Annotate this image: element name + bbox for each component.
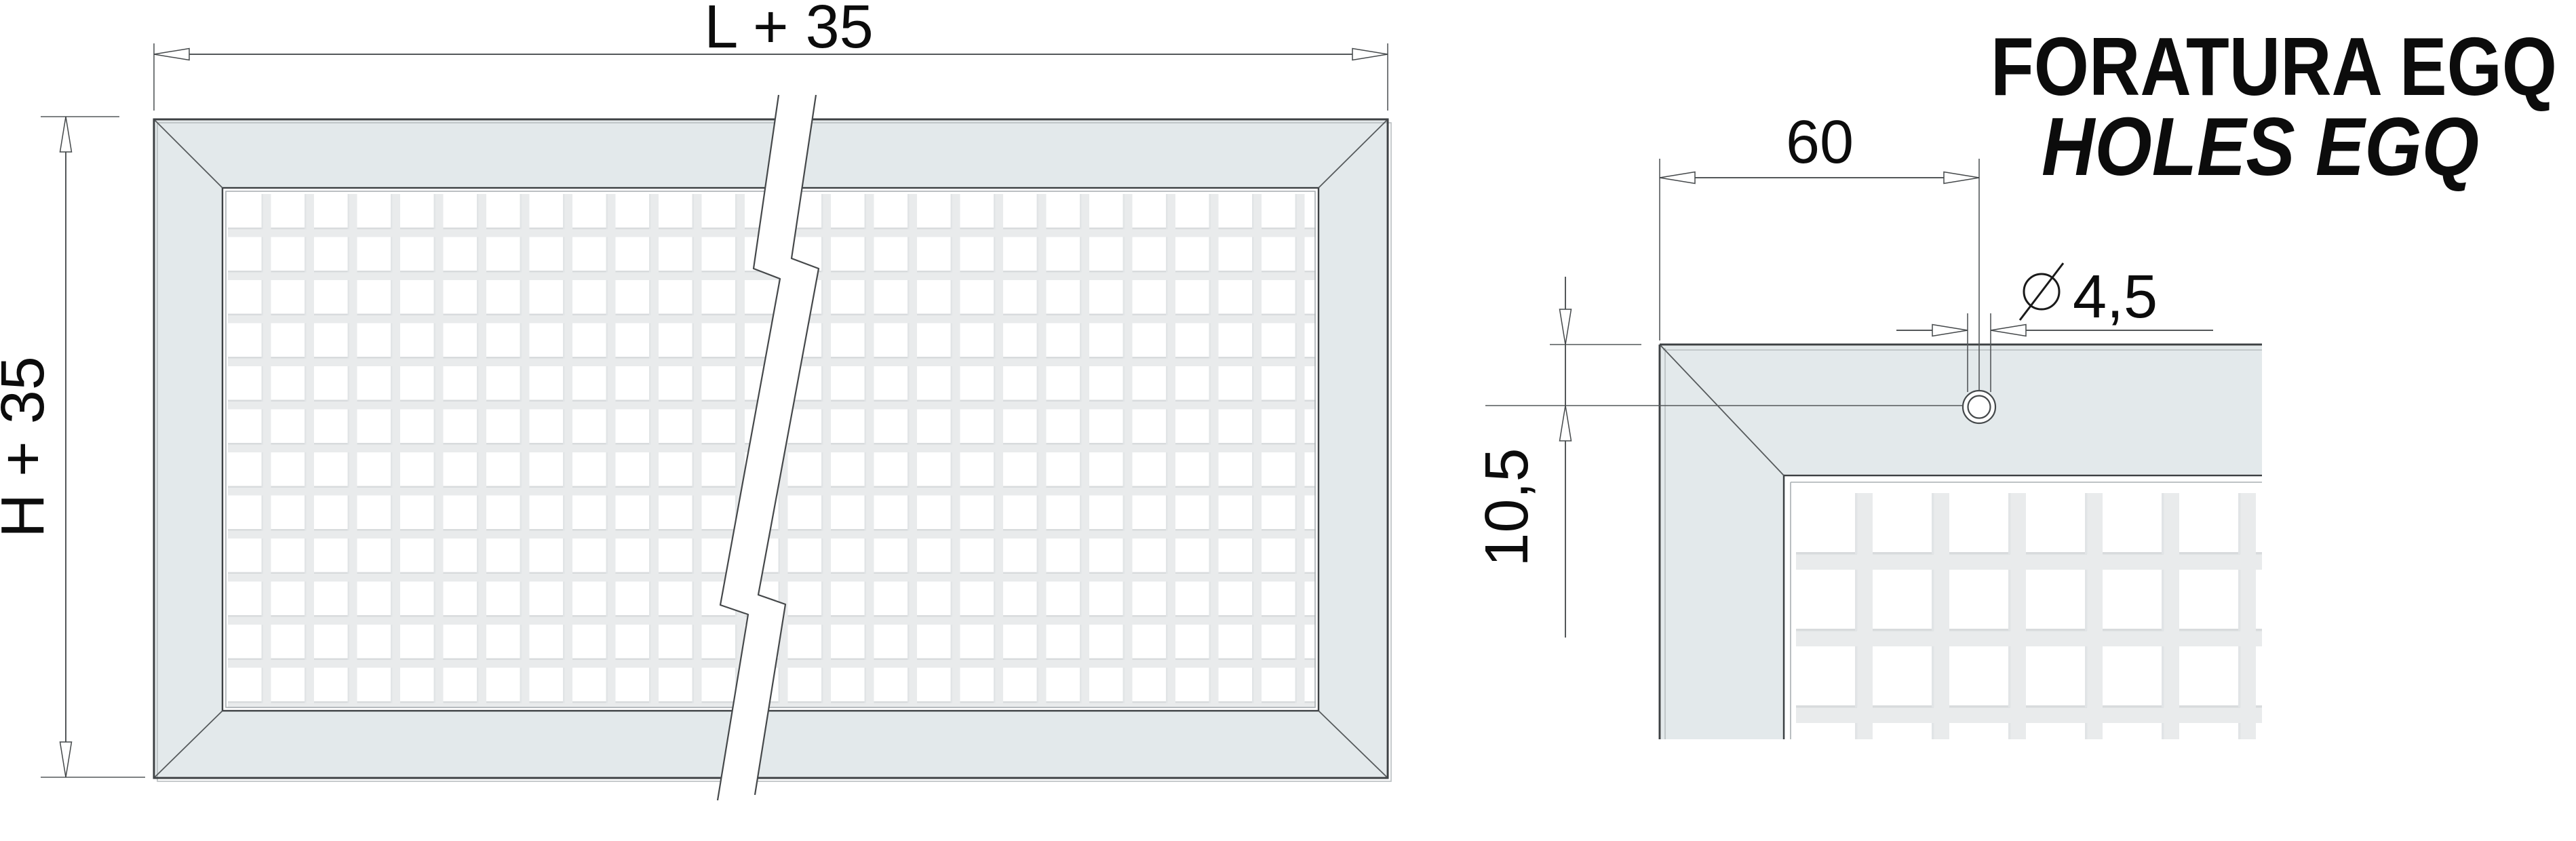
technical-drawing-canvas: L + 35 H + 35 xyxy=(0,0,2576,841)
width-dimension: L + 35 xyxy=(154,0,1388,111)
arrow-left-icon xyxy=(1660,172,1695,184)
arrow-left-icon xyxy=(154,49,189,60)
arrow-down-icon xyxy=(1560,309,1572,345)
hole-offset-dim-label: 60 xyxy=(1786,109,1854,176)
corner-detail-view: 60 4,5 10,5 xyxy=(1473,109,2262,739)
width-dim-label: L + 35 xyxy=(704,0,873,61)
arrow-down-icon xyxy=(60,742,72,777)
arrow-up-icon xyxy=(60,117,72,152)
hole-edge-distance-dim-label: 10,5 xyxy=(1473,448,1541,566)
arrow-right-icon xyxy=(1944,172,1979,184)
height-dim-label: H + 35 xyxy=(0,356,57,538)
arrow-up-icon xyxy=(1560,406,1572,441)
height-dimension: H + 35 xyxy=(0,117,145,777)
arrow-left-icon xyxy=(1991,325,2026,336)
fixing-hole xyxy=(1963,391,1995,423)
title-line2: HOLES EGQ xyxy=(2042,100,2479,193)
front-grille-view: L + 35 H + 35 xyxy=(0,0,1391,800)
detail-mesh-grid xyxy=(1796,493,2262,739)
hole-diameter-dim-label: 4,5 xyxy=(2073,263,2158,331)
arrow-right-icon xyxy=(1932,325,1968,336)
drawing-title: FORATURA EGQ HOLES EGQ xyxy=(1991,20,2557,193)
title-line1: FORATURA EGQ xyxy=(1991,20,2557,113)
diameter-symbol-icon xyxy=(2020,263,2063,320)
arrow-right-icon xyxy=(1352,49,1388,60)
